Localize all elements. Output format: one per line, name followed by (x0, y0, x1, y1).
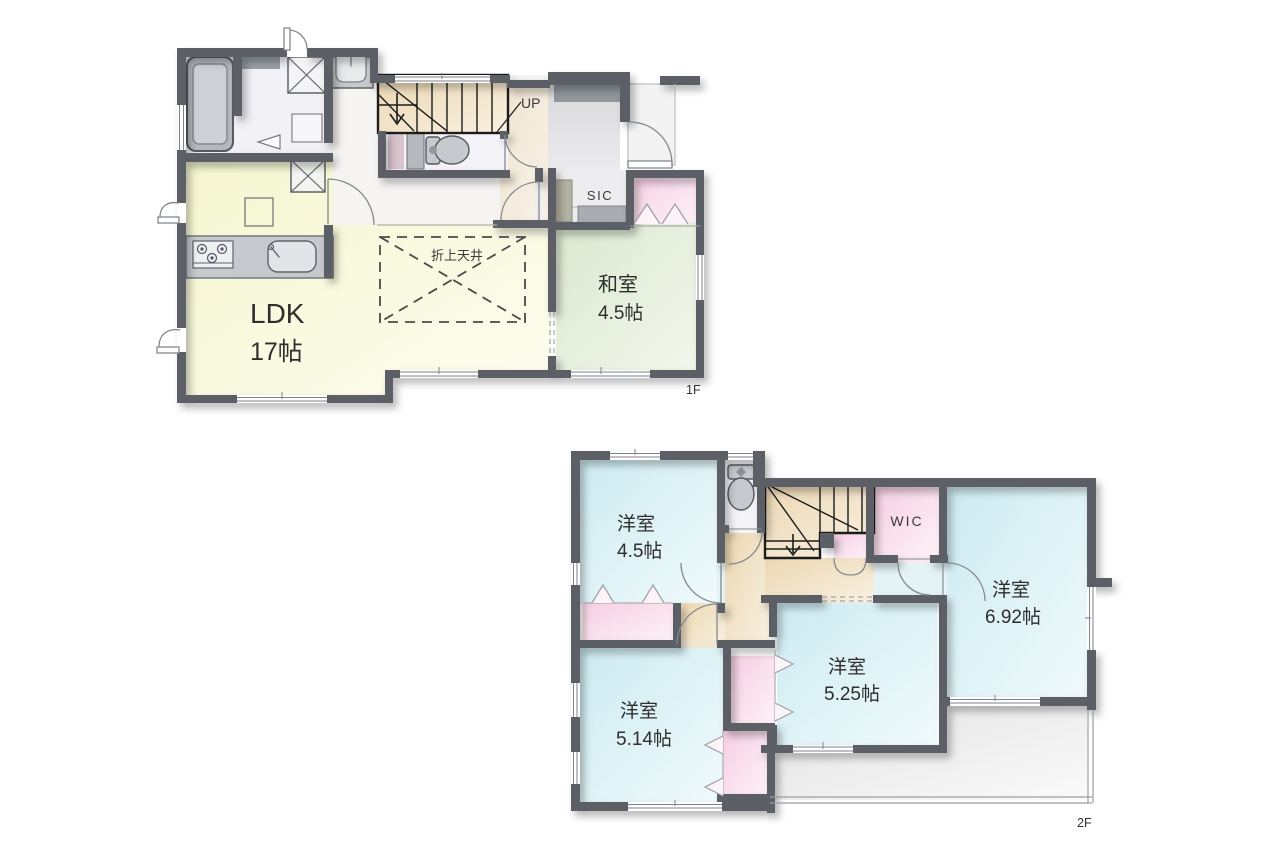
floorplan-page: LDK 17帖 和室 4.5帖 SIC UP 折上天井 1F (0, 0, 1280, 867)
back-door-top (284, 28, 307, 57)
sic-shelf-bottom (578, 206, 626, 223)
washroom-cabinet (292, 114, 322, 142)
bedroom-b-name-label: 洋室 (992, 579, 1030, 601)
window-bedroom-d-left-a (571, 683, 580, 717)
bedroom-d-door-gap (677, 640, 717, 648)
hall-closet (834, 533, 866, 558)
bedroom-a-size-label: 4.5帖 (617, 540, 662, 562)
ldk-size-label: 17帖 (250, 338, 303, 366)
wic-label: WIC (890, 513, 923, 529)
floor-1-plan: LDK 17帖 和室 4.5帖 SIC UP 折上天井 1F (157, 28, 704, 403)
hallway-2f-a (725, 533, 769, 648)
bathtub-inner (193, 64, 227, 144)
window-toilet-top-2f (728, 451, 753, 460)
floor-2-plan: 洋室 4.5帖 洋室 6.92帖 洋室 5.25帖 洋室 5.14帖 WIC 2… (571, 449, 1112, 830)
washitsu-name-label: 和室 (598, 273, 638, 296)
kitchen-side-door (158, 203, 186, 223)
bedroom-c-closet (731, 656, 775, 723)
ldk-name-label: LDK (250, 298, 305, 329)
bedroom-b-entry-nook (874, 563, 947, 595)
bedroom-c-size-label: 5.25帖 (824, 683, 880, 705)
toilet-icon-1f (426, 136, 469, 164)
bedroom-d-closet (723, 731, 767, 796)
floor2-tag: 2F (1077, 816, 1092, 830)
window-bedroom-d-left-b (571, 752, 580, 784)
window-bedroom-a-top (610, 449, 660, 460)
porch (628, 84, 675, 165)
bedroom-a-closet (583, 603, 673, 640)
toilet-cabinet-gray (407, 133, 424, 169)
stairs-1f (378, 75, 521, 133)
sic-label: SIC (587, 188, 613, 203)
floorplan-canvas: LDK 17帖 和室 4.5帖 SIC UP 折上天井 1F (0, 0, 1280, 867)
window-bedroom-a-left (571, 563, 580, 585)
toilet-cabinet-pink (388, 133, 404, 169)
kitchen-sink-icon (268, 241, 316, 272)
bedroom-d-size-label: 5.14帖 (616, 728, 672, 750)
floor1-tag: 1F (686, 383, 701, 397)
window-washitsu-right (696, 255, 704, 300)
bedroom-d-name-label: 洋室 (620, 700, 658, 722)
washitsu-size-label: 4.5帖 (598, 302, 643, 324)
ceiling-note-label: 折上天井 (431, 248, 483, 263)
window-bath-left (177, 105, 186, 150)
f2-fixtures (728, 465, 755, 510)
toilet-icon-2f (728, 465, 755, 510)
room-bedroom-d (580, 648, 723, 802)
room-washitsu (556, 222, 696, 378)
bedroom-b-size-label: 6.92帖 (985, 606, 1041, 628)
shoe-cabinet (554, 85, 622, 102)
stairs-up-label: UP (521, 95, 540, 111)
living-side-door (157, 328, 186, 353)
bedroom-c-name-label: 洋室 (828, 656, 866, 678)
bedroom-a-name-label: 洋室 (617, 513, 655, 535)
